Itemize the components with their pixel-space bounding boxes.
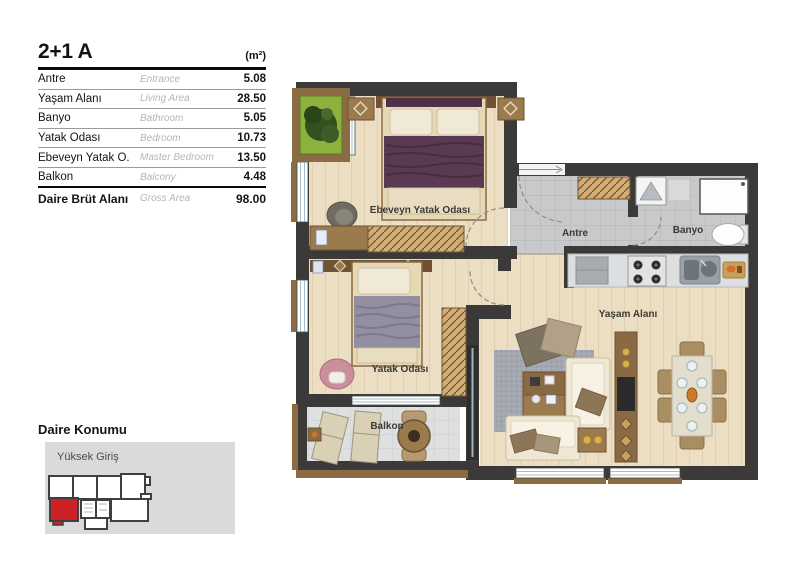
coffee-table [523, 372, 565, 418]
gross-area-label-en: Gross Area [140, 193, 190, 204]
master-bedroom-window [297, 162, 308, 222]
table-row: Yaşam Alanı Living Area 28.50 [38, 90, 266, 110]
building-minimap [45, 442, 235, 534]
label-living-area: Yaşam Alanı [599, 309, 658, 320]
single-bed [352, 262, 422, 366]
room-name-tr: Ebeveyn Yatak O. [38, 152, 130, 164]
label-balcony: Balkon [370, 421, 403, 432]
tv-unit [615, 332, 637, 462]
double-bed [382, 98, 486, 220]
kitchen-sink [680, 256, 720, 284]
entrance-furniture [578, 177, 630, 199]
entrance-door [519, 164, 565, 175]
table-header: 2+1 A (m²) [38, 40, 266, 70]
side-table [578, 428, 606, 452]
label-bathroom: Banyo [673, 225, 704, 236]
tall-window [467, 345, 478, 460]
location-panel: Yüksek Giriş [45, 442, 235, 534]
room-name-tr: Balkon [38, 171, 73, 183]
living-window-1 [516, 468, 604, 478]
room-name-en: Bathroom [140, 113, 183, 124]
room-name-en: Living Area [140, 93, 190, 104]
location-title: Daire Konumu [38, 422, 238, 437]
tv [617, 377, 635, 411]
balcony-furniture [308, 411, 430, 464]
sofa [506, 416, 580, 460]
table-row: Banyo Bathroom 5.05 [38, 109, 266, 129]
hall-wardrobe [578, 177, 630, 199]
room-name-tr: Yaşam Alanı [38, 93, 102, 105]
floor-plan: Ebeveyn Yatak Odası Antre Banyo Yaşam Al… [288, 68, 768, 488]
wardrobe [368, 226, 464, 252]
bistro-table [398, 411, 430, 461]
room-name-en: Balcony [140, 172, 176, 183]
table-total-row: Daire Brüt Alanı Gross Area 98.00 [38, 186, 266, 210]
toilet [712, 224, 748, 246]
highlighted-unit [50, 498, 78, 525]
living-window-2 [610, 468, 680, 478]
gross-area-label-tr: Daire Brüt Alanı [38, 192, 128, 206]
room-name-en: Master Bedroom [140, 152, 214, 163]
room-area-value: 13.50 [237, 152, 266, 164]
room-area-value: 4.48 [244, 171, 266, 183]
balcony-window [352, 396, 440, 405]
table-row: Ebeveyn Yatak O. Master Bedroom 13.50 [38, 148, 266, 168]
planter [292, 88, 350, 162]
label-bedroom: Yatak Odası [372, 364, 429, 375]
stove [628, 256, 666, 286]
unit-location: Daire Konumu Yüksek Giriş [38, 422, 238, 534]
gross-area-value: 98.00 [236, 192, 266, 206]
cutting-board [723, 262, 745, 278]
unit-area-table: 2+1 A (m²) Antre Entrance 5.08 Yaşam Ala… [38, 40, 266, 210]
room-area-value: 10.73 [237, 132, 266, 144]
room-name-en: Bedroom [140, 133, 181, 144]
kitchen-counter [568, 254, 748, 287]
room-area-value: 5.08 [244, 73, 266, 85]
room-name-tr: Yatak Odası [38, 132, 100, 144]
wardrobe [442, 308, 466, 396]
shower [700, 179, 748, 214]
room-area-value: 5.05 [244, 112, 266, 124]
room-area-value: 28.50 [237, 93, 266, 105]
room-name-en: Entrance [140, 74, 180, 85]
table-row: Balkon Balcony 4.48 [38, 168, 266, 187]
unit-type-title: 2+1 A [38, 40, 92, 64]
table-row: Yatak Odası Bedroom 10.73 [38, 129, 266, 149]
room-name-tr: Banyo [38, 112, 71, 124]
unit-of-measure: (m²) [245, 50, 266, 64]
table-row: Antre Entrance 5.08 [38, 70, 266, 90]
floor-plan-page: { "table": { "title": "2+1 A", "unit": "… [0, 0, 800, 566]
label-master-bedroom: Ebeveyn Yatak Odası [370, 205, 471, 216]
room-name-tr: Antre [38, 73, 66, 85]
label-entrance: Antre [562, 228, 589, 239]
bedroom-window [297, 280, 308, 332]
lounger [351, 411, 381, 463]
